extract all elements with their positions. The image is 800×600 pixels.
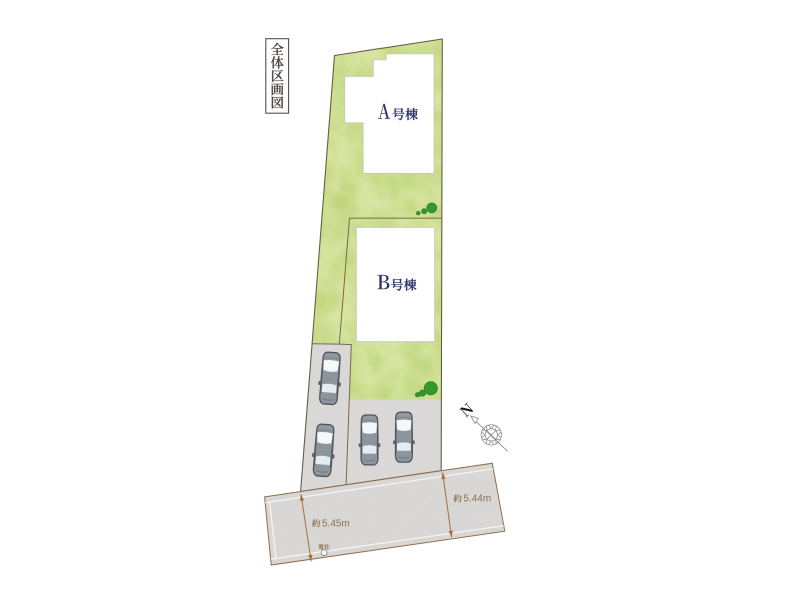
svg-text:5.44m: 5.44m [463,494,491,505]
svg-text:5.45m: 5.45m [322,518,350,529]
